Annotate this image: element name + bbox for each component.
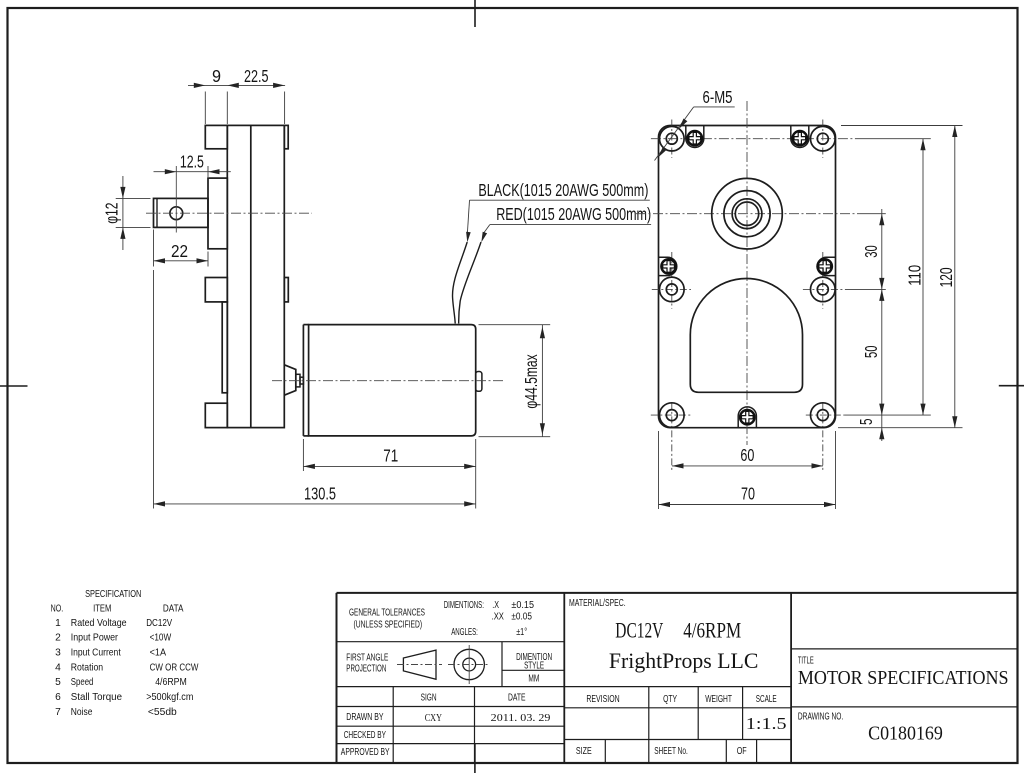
svg-text:SIGN: SIGN <box>421 693 437 704</box>
svg-text:60: 60 <box>740 445 754 465</box>
svg-text:ITEM: ITEM <box>93 603 111 614</box>
svg-text:<55db: <55db <box>148 707 177 718</box>
svg-text:5: 5 <box>55 677 61 688</box>
svg-text:110: 110 <box>905 265 925 286</box>
svg-text:CHECKED BY: CHECKED BY <box>344 730 387 741</box>
svg-text:130.5: 130.5 <box>304 483 336 503</box>
svg-text:φ12: φ12 <box>102 203 122 224</box>
svg-text:φ44.5max: φ44.5max <box>521 354 541 408</box>
svg-text:DATA: DATA <box>163 603 184 614</box>
svg-text:Rotation: Rotation <box>71 662 103 673</box>
svg-text:9: 9 <box>212 66 221 86</box>
svg-text:±1°: ±1° <box>516 627 527 638</box>
svg-text:±0.05: ±0.05 <box>511 611 532 622</box>
svg-text:70: 70 <box>741 484 755 504</box>
svg-text:50: 50 <box>861 345 881 358</box>
svg-text:4/6RPM: 4/6RPM <box>683 618 741 643</box>
svg-text:Input Power: Input Power <box>71 633 119 644</box>
svg-text:CXY: CXY <box>425 712 442 724</box>
svg-text:CW OR CCW: CW OR CCW <box>150 662 199 673</box>
svg-text:2011. 03. 29: 2011. 03. 29 <box>491 712 551 724</box>
svg-text:SPECIFICATION: SPECIFICATION <box>85 589 141 600</box>
svg-text:30: 30 <box>861 245 881 258</box>
svg-text:22: 22 <box>171 241 188 261</box>
svg-text:DIMENTIONS:: DIMENTIONS: <box>444 600 484 611</box>
svg-text:OF: OF <box>737 746 747 757</box>
svg-text:SCALE: SCALE <box>756 694 777 705</box>
svg-text:22.5: 22.5 <box>244 66 269 86</box>
svg-text:(UNLESS SPECIFIED): (UNLESS SPECIFIED) <box>354 620 423 631</box>
svg-text:7: 7 <box>55 707 61 718</box>
svg-text:Speed: Speed <box>71 677 94 688</box>
svg-text:REVISION: REVISION <box>586 694 619 705</box>
svg-text:PROJECTION: PROJECTION <box>346 664 386 675</box>
svg-text:QTY: QTY <box>663 694 677 705</box>
svg-text:4/6RPM: 4/6RPM <box>155 677 187 688</box>
svg-text:DC12V: DC12V <box>615 618 663 643</box>
svg-text:DRAWN BY: DRAWN BY <box>346 712 384 723</box>
svg-text:6-M5: 6-M5 <box>703 87 733 107</box>
svg-text:1:1.5: 1:1.5 <box>746 714 787 733</box>
svg-text:71: 71 <box>383 446 398 466</box>
svg-text:120: 120 <box>936 267 956 287</box>
svg-text:1: 1 <box>55 618 61 629</box>
svg-text:C0180169: C0180169 <box>868 723 943 745</box>
svg-text:.X: .X <box>492 600 499 611</box>
svg-text:Input Current: Input Current <box>71 648 121 659</box>
svg-text:4: 4 <box>55 662 61 673</box>
svg-text:ANGLES:: ANGLES: <box>451 627 478 638</box>
svg-text:±0.15: ±0.15 <box>511 600 534 611</box>
svg-text:DRAWING NO.: DRAWING NO. <box>798 711 843 722</box>
svg-text:2: 2 <box>55 633 61 644</box>
svg-text:5: 5 <box>856 419 876 426</box>
svg-text:TITLE: TITLE <box>798 656 814 667</box>
svg-text:APPROVED BY: APPROVED BY <box>341 747 390 758</box>
svg-text:RED(1015 20AWG 500mm): RED(1015 20AWG 500mm) <box>496 204 651 224</box>
svg-text:FrightProps LLC: FrightProps LLC <box>609 648 759 673</box>
svg-text:Stall Torque: Stall Torque <box>71 692 123 703</box>
svg-text:FIRST ANGLE: FIRST ANGLE <box>346 652 388 663</box>
svg-text:Rated Voltage: Rated Voltage <box>71 618 127 629</box>
svg-text:STYLE: STYLE <box>524 661 544 672</box>
svg-text:3: 3 <box>55 648 61 659</box>
svg-text:GENERAL TOLERANCES: GENERAL TOLERANCES <box>349 608 425 619</box>
svg-text:12.5: 12.5 <box>180 151 204 171</box>
svg-text:MATERIAL/SPEC.: MATERIAL/SPEC. <box>569 598 626 609</box>
svg-text:>500kgf.cm: >500kgf.cm <box>146 692 193 703</box>
svg-text:NO.: NO. <box>51 603 64 614</box>
svg-text:DATE: DATE <box>508 693 526 704</box>
svg-text:WEIGHT: WEIGHT <box>705 694 732 705</box>
svg-text:DC12V: DC12V <box>146 618 172 629</box>
svg-text:<1A: <1A <box>150 648 167 659</box>
svg-text:<10W: <10W <box>150 633 172 644</box>
svg-text:MOTOR SPECIFICATIONS: MOTOR SPECIFICATIONS <box>798 667 1009 689</box>
svg-text:Noise: Noise <box>71 707 93 718</box>
svg-text:SIZE: SIZE <box>576 746 592 757</box>
svg-text:BLACK(1015 20AWG 500mm): BLACK(1015 20AWG 500mm) <box>478 180 648 200</box>
svg-text:SHEET No.: SHEET No. <box>654 746 688 757</box>
svg-text:.XX: .XX <box>492 611 505 622</box>
svg-text:MM: MM <box>528 673 539 684</box>
svg-text:6: 6 <box>55 692 61 703</box>
